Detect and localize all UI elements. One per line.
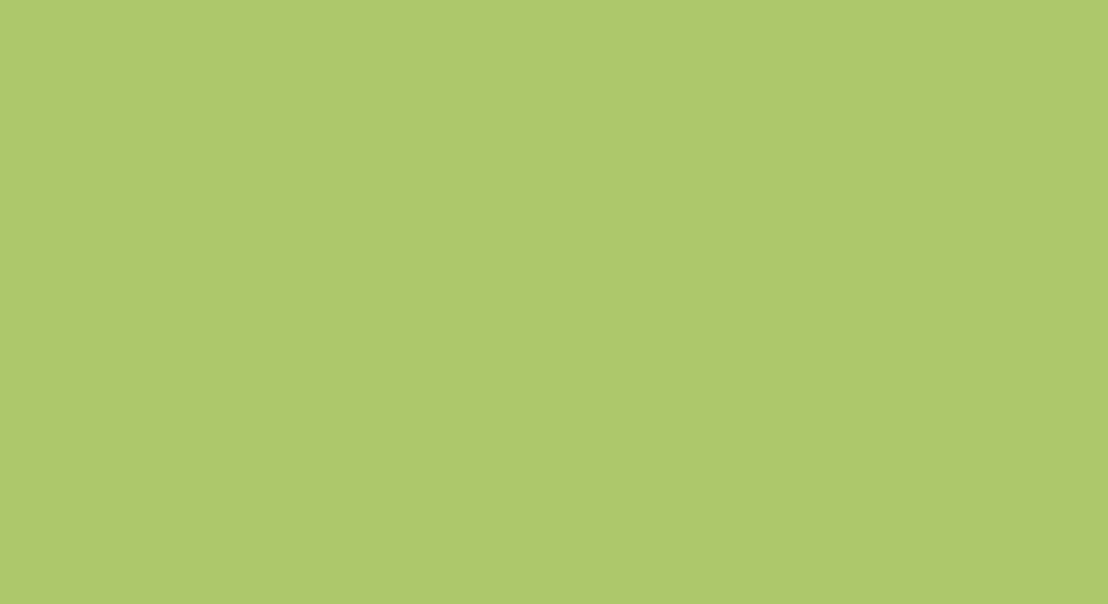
map-frame: A1A2A3A4A5A6A7A8A9B1B2B3B4B5B6B7B8B9C1C2… (0, 0, 1108, 604)
map-ground (0, 0, 1108, 604)
map-canvas[interactable]: A1A2A3A4A5A6A7A8A9B1B2B3B4B5B6B7B8B9C1C2… (0, 0, 1108, 604)
